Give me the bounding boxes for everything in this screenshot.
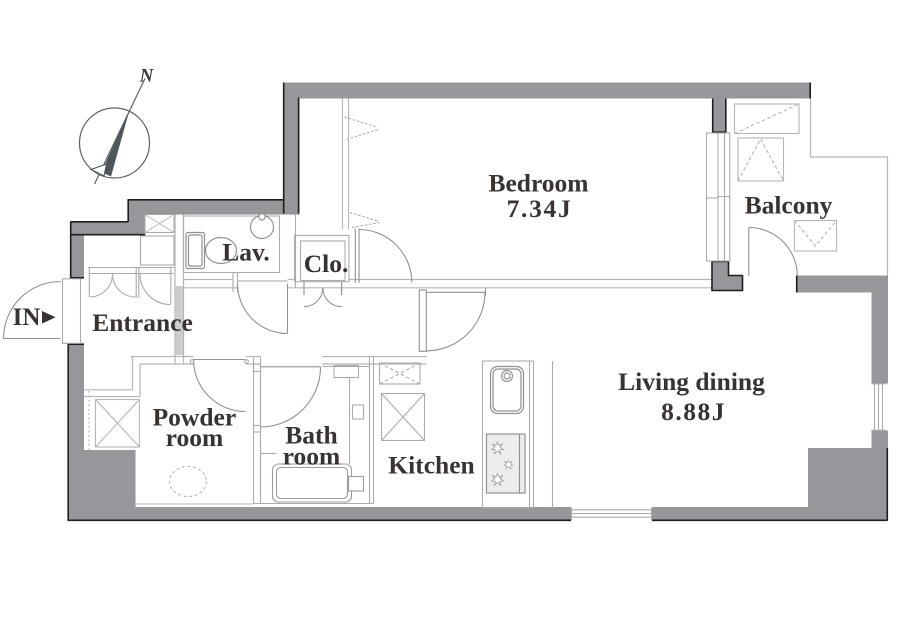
svg-text:7.34J: 7.34J	[507, 194, 573, 223]
svg-text:8.88J: 8.88J	[661, 397, 726, 426]
svg-text:Kitchen: Kitchen	[388, 451, 474, 480]
svg-text:IN: IN	[13, 304, 41, 331]
svg-text:Lav.: Lav.	[222, 238, 269, 267]
svg-text:Balcony: Balcony	[745, 191, 833, 220]
svg-text:room: room	[166, 423, 224, 452]
svg-text:Entrance: Entrance	[92, 308, 193, 337]
svg-text:Clo.: Clo.	[304, 249, 349, 278]
svg-text:Living dining: Living dining	[618, 367, 765, 396]
svg-text:N: N	[139, 66, 155, 87]
svg-text:room: room	[283, 442, 341, 471]
